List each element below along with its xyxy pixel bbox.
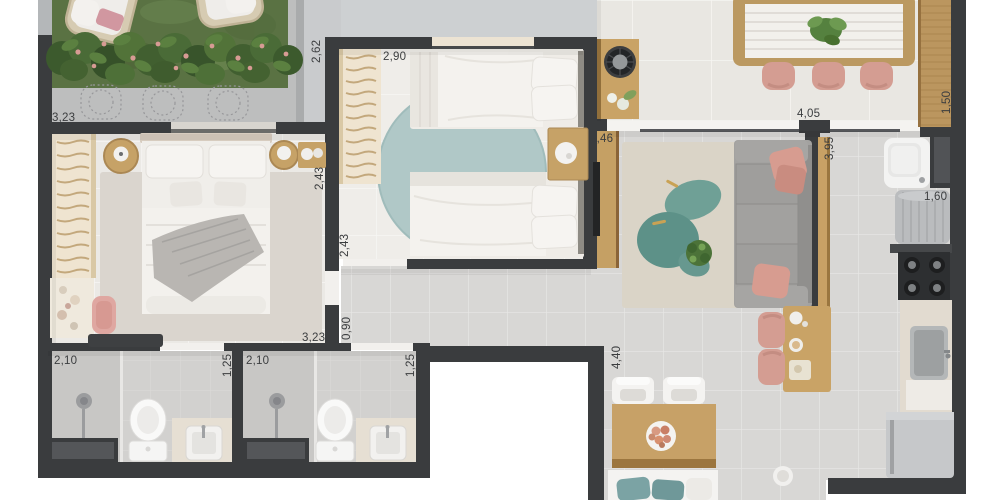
svg-text:2,90: 2,90 [383, 51, 406, 63]
svg-text:3,23: 3,23 [302, 332, 325, 344]
svg-text:1,50: 1,50 [941, 91, 953, 114]
svg-text:2,10: 2,10 [54, 355, 77, 367]
svg-text:0,90: 0,90 [341, 317, 353, 340]
svg-text:2,43: 2,43 [314, 167, 326, 190]
svg-text:3,23: 3,23 [52, 112, 75, 124]
svg-text:1,60: 1,60 [924, 191, 947, 203]
svg-text:3,95: 3,95 [824, 137, 836, 160]
svg-text:4,40: 4,40 [611, 346, 623, 369]
svg-text:2,10: 2,10 [246, 355, 269, 367]
svg-text:2,46: 2,46 [590, 133, 613, 145]
svg-text:2,43: 2,43 [339, 234, 351, 257]
svg-text:1,25: 1,25 [405, 354, 417, 377]
svg-text:1,25: 1,25 [222, 354, 234, 377]
svg-text:4,05: 4,05 [797, 108, 820, 120]
svg-text:2,62: 2,62 [311, 40, 323, 63]
